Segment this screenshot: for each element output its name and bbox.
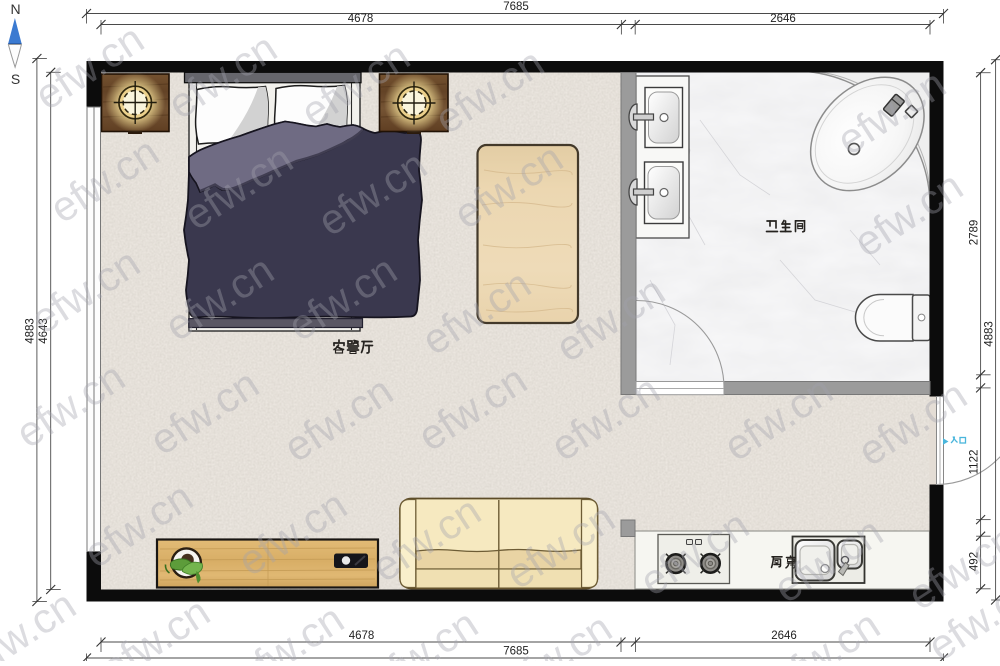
svg-text:4678: 4678	[348, 13, 374, 25]
svg-text:N: N	[10, 1, 20, 17]
svg-text:2789: 2789	[969, 220, 981, 246]
svg-text:7685: 7685	[503, 1, 529, 13]
svg-text:2646: 2646	[771, 630, 797, 642]
svg-text:1122: 1122	[969, 450, 981, 475]
svg-text:S: S	[11, 71, 20, 87]
svg-text:4883: 4883	[984, 321, 996, 347]
svg-text:4678: 4678	[349, 630, 375, 642]
svg-text:2646: 2646	[770, 13, 796, 25]
